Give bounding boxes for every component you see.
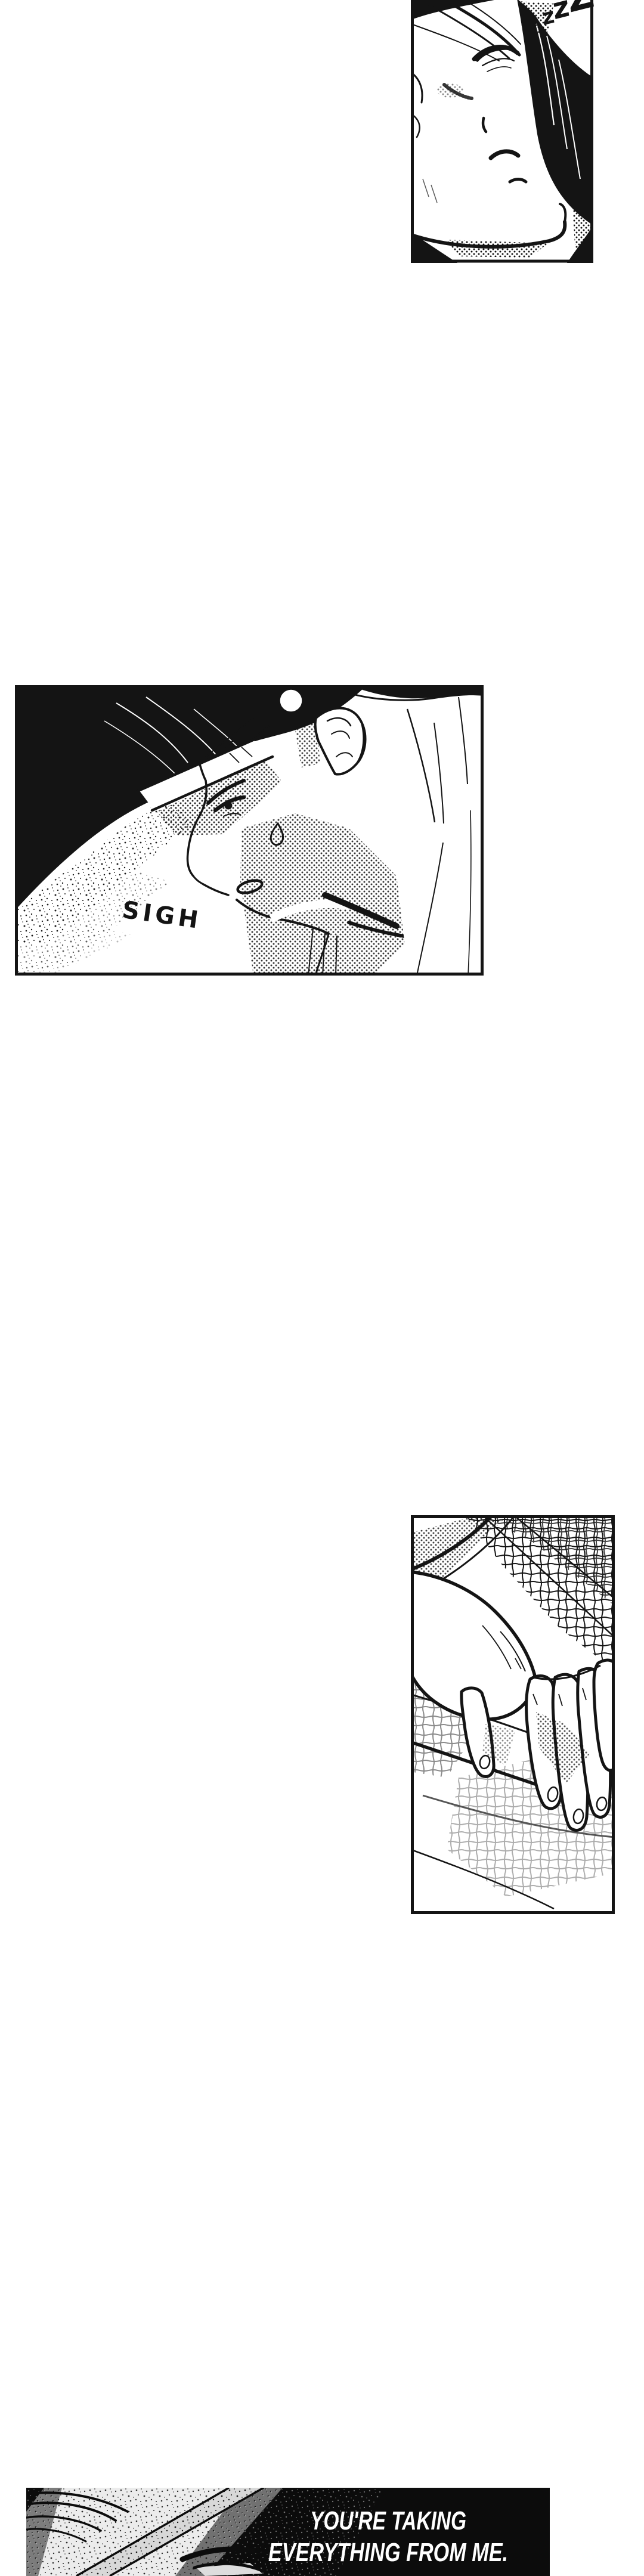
dialogue-line-2: EVERYTHING FROM ME.	[268, 2538, 508, 2567]
panel-dialogue: YOU'RE TAKING EVERYTHING FROM ME.	[26, 2488, 550, 2576]
sigh-man-illustration	[15, 685, 484, 976]
dialogue-panel-illustration: YOU'RE TAKING EVERYTHING FROM ME.	[26, 2488, 550, 2576]
comic-page: zzZ	[0, 0, 644, 2576]
dialogue-line-1: YOU'RE TAKING	[310, 2506, 466, 2535]
sfx-zzz-letter: Z	[565, 0, 595, 18]
panel-sleeping-face	[411, 0, 593, 263]
sleeping-face-illustration	[411, 0, 593, 263]
panel-sigh	[15, 685, 484, 976]
hand-illustration	[411, 1515, 615, 1914]
panel-hand	[411, 1515, 615, 1914]
